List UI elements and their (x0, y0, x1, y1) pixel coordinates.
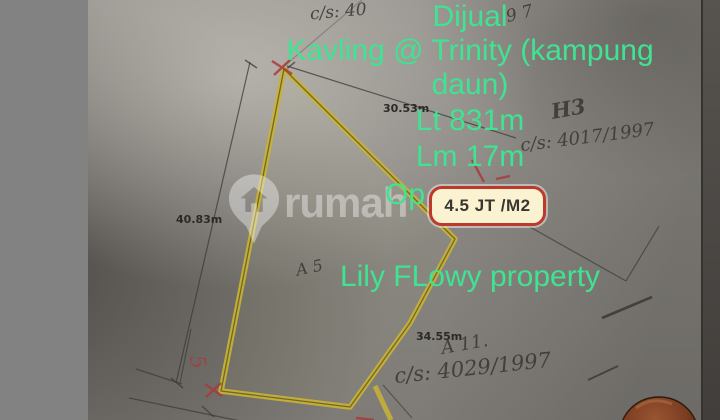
dimension-label-top-edge: 30.53m (383, 102, 429, 115)
dimension-label-left-edge: 40.83m (176, 213, 222, 226)
price-badge-label: 4.5 JT /M2 (444, 196, 530, 216)
house-pin-icon (228, 172, 280, 246)
letterbox-right (703, 0, 720, 420)
price-badge: 4.5 JT /M2 (429, 186, 546, 226)
listing-photo: c/s: 40 9 7 H3 c/s: 4017/1997 A 5 A 11. … (0, 0, 720, 420)
listing-offer-prefix: Op (385, 178, 425, 212)
portal-watermark: rumah (228, 172, 407, 246)
letterbox-left (0, 0, 88, 420)
dimension-label-bottom-area: 34.55m (416, 330, 462, 343)
